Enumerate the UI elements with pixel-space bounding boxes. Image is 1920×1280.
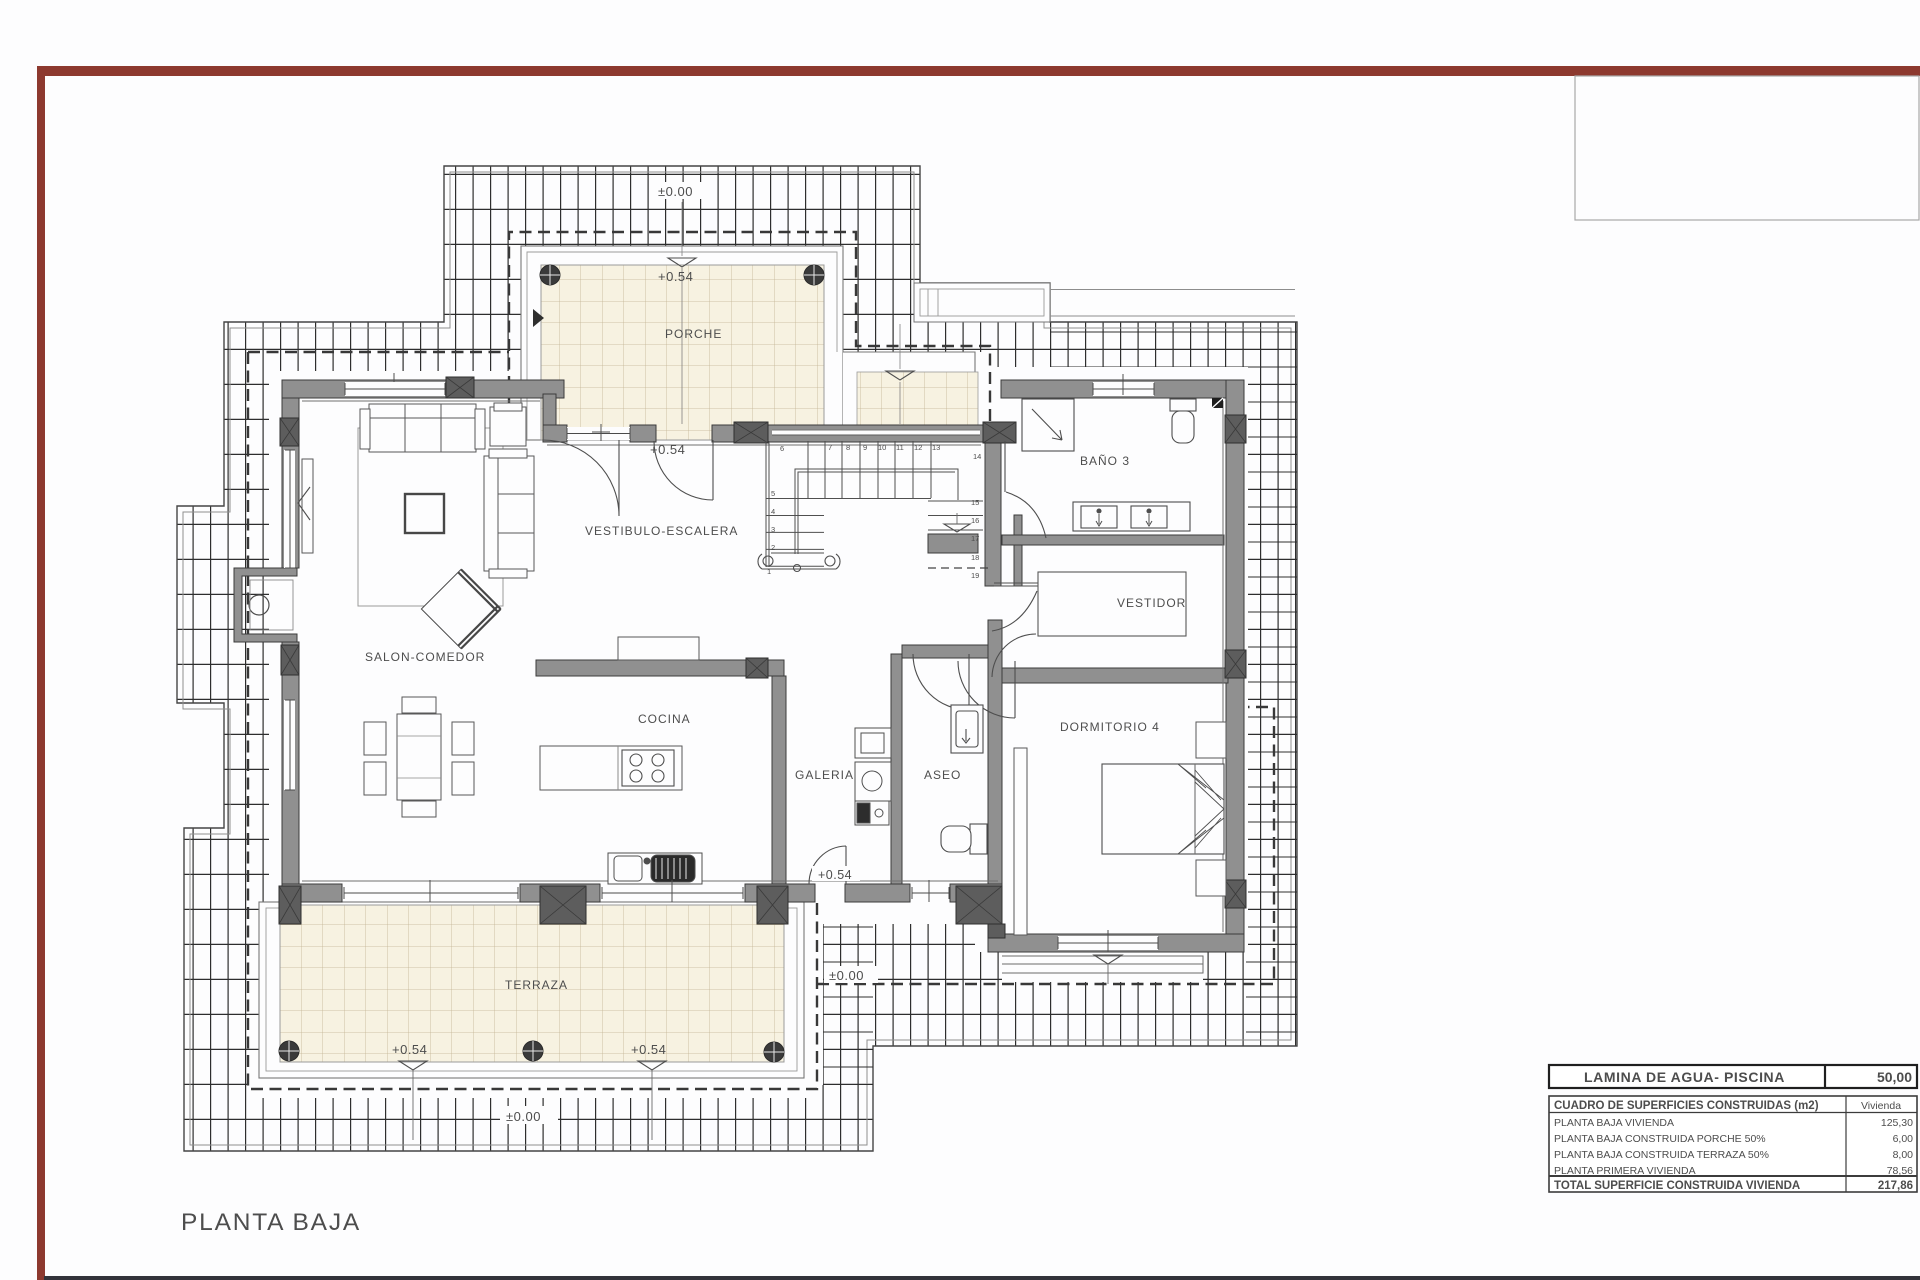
svg-text:TERRAZA: TERRAZA [505,978,568,992]
svg-text:11: 11 [896,443,904,452]
svg-text:78,56: 78,56 [1887,1165,1913,1177]
svg-text:13: 13 [932,443,940,452]
svg-text:6,00: 6,00 [1893,1133,1914,1145]
svg-text:50,00: 50,00 [1877,1069,1912,1085]
svg-text:2: 2 [771,543,775,552]
svg-text:125,30: 125,30 [1881,1117,1913,1129]
svg-text:+0.54: +0.54 [631,1042,666,1057]
svg-text:Vivienda: Vivienda [1861,1100,1901,1112]
svg-text:TOTAL SUPERFICIE CONSTRUIDA VI: TOTAL SUPERFICIE CONSTRUIDA VIVIENDA [1554,1180,1800,1192]
svg-text:±0.00: ±0.00 [506,1109,541,1124]
svg-text:VESTIBULO-ESCALERA: VESTIBULO-ESCALERA [585,524,738,538]
svg-text:DORMITORIO 4: DORMITORIO 4 [1060,720,1160,734]
svg-text:+0.54: +0.54 [658,269,693,284]
svg-text:217,86: 217,86 [1878,1180,1913,1192]
svg-text:12: 12 [914,443,922,452]
svg-text:BAÑO 3: BAÑO 3 [1080,454,1130,468]
svg-text:GALERIA: GALERIA [795,768,854,782]
svg-text:1: 1 [767,567,771,576]
svg-text:4: 4 [771,507,775,516]
svg-text:PLANTA BAJA VIVIENDA: PLANTA BAJA VIVIENDA [1554,1117,1674,1129]
svg-text:PLANTA BAJA: PLANTA BAJA [181,1209,361,1236]
svg-text:+0.54: +0.54 [650,442,685,457]
svg-text:LAMINA DE AGUA- PISCINA: LAMINA DE AGUA- PISCINA [1584,1069,1785,1085]
svg-text:PLANTA BAJA CONSTRUIDA PORCHE: PLANTA BAJA CONSTRUIDA PORCHE 50% [1554,1133,1766,1145]
svg-text:5: 5 [771,489,775,498]
svg-text:PORCHE: PORCHE [665,327,722,341]
svg-text:7: 7 [828,443,832,452]
svg-text:SALON-COMEDOR: SALON-COMEDOR [365,650,485,664]
svg-text:3: 3 [771,525,775,534]
svg-text:CUADRO DE SUPERFICIES CONSTRUI: CUADRO DE SUPERFICIES CONSTRUIDAS (m2) [1554,1100,1819,1112]
svg-text:±0.00: ±0.00 [658,184,693,199]
svg-text:10: 10 [878,443,886,452]
svg-text:PLANTA PRIMERA VIVIENDA: PLANTA PRIMERA VIVIENDA [1554,1165,1696,1177]
svg-text:9: 9 [863,443,867,452]
svg-text:6: 6 [780,444,784,453]
svg-text:PLANTA BAJA CONSTRUIDA TERRAZA: PLANTA BAJA CONSTRUIDA TERRAZA 50% [1554,1149,1769,1161]
svg-text:18: 18 [971,553,979,562]
svg-text:ASEO: ASEO [924,768,961,782]
svg-text:+0.54: +0.54 [392,1042,427,1057]
svg-text:8: 8 [846,443,850,452]
svg-text:COCINA: COCINA [638,712,691,726]
svg-text:19: 19 [971,571,979,580]
svg-text:±0.00: ±0.00 [829,968,864,983]
svg-text:VESTIDOR: VESTIDOR [1117,596,1186,610]
svg-text:16: 16 [971,516,979,525]
svg-text:15: 15 [971,498,979,507]
svg-text:+0.54: +0.54 [818,868,852,882]
svg-text:14: 14 [973,452,981,461]
svg-text:17: 17 [971,534,979,543]
svg-text:8,00: 8,00 [1893,1149,1914,1161]
